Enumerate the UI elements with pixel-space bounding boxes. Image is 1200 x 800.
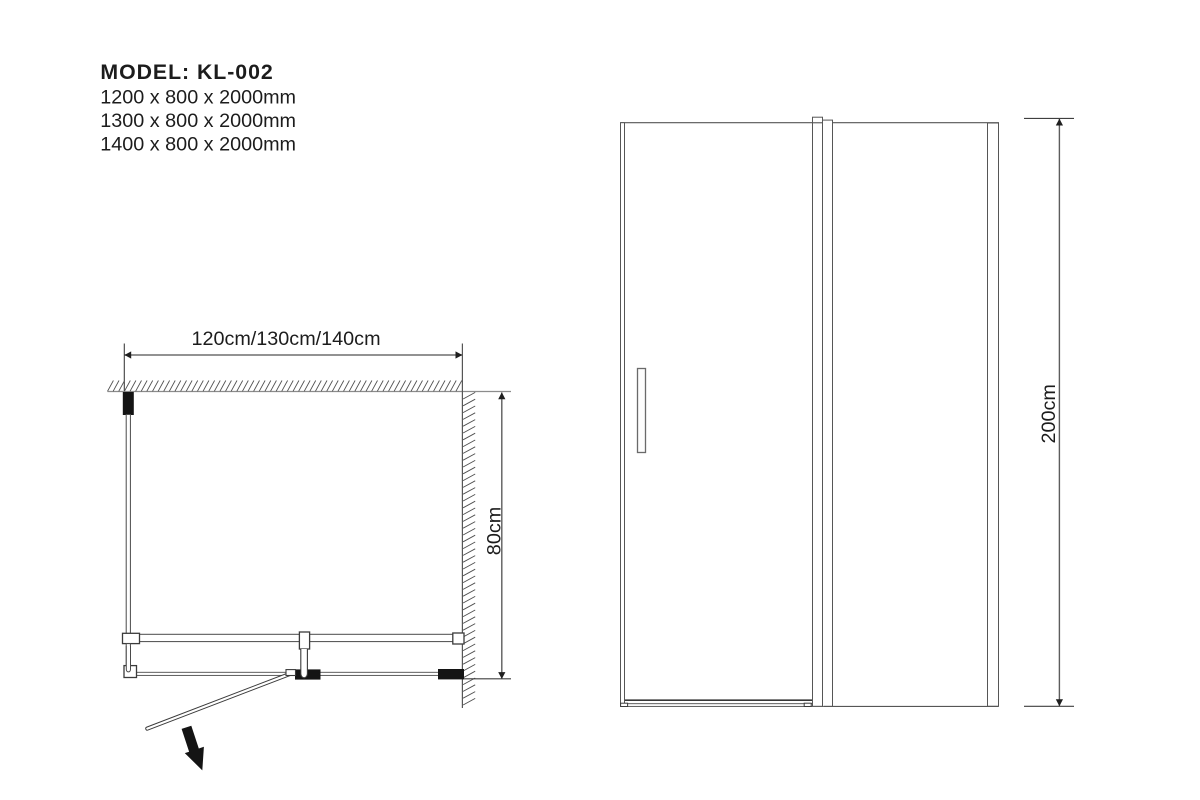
svg-text:1200 x 800 x 2000mm: 1200 x 800 x 2000mm — [100, 87, 296, 109]
svg-text:120cm/130cm/140cm: 120cm/130cm/140cm — [191, 328, 380, 350]
svg-text:MODEL: KL-002: MODEL: KL-002 — [100, 60, 273, 84]
svg-text:1400 x 800 x 2000mm: 1400 x 800 x 2000mm — [100, 134, 296, 156]
svg-text:1300 x 800 x 2000mm: 1300 x 800 x 2000mm — [100, 110, 296, 132]
svg-text:200cm: 200cm — [1038, 384, 1060, 443]
